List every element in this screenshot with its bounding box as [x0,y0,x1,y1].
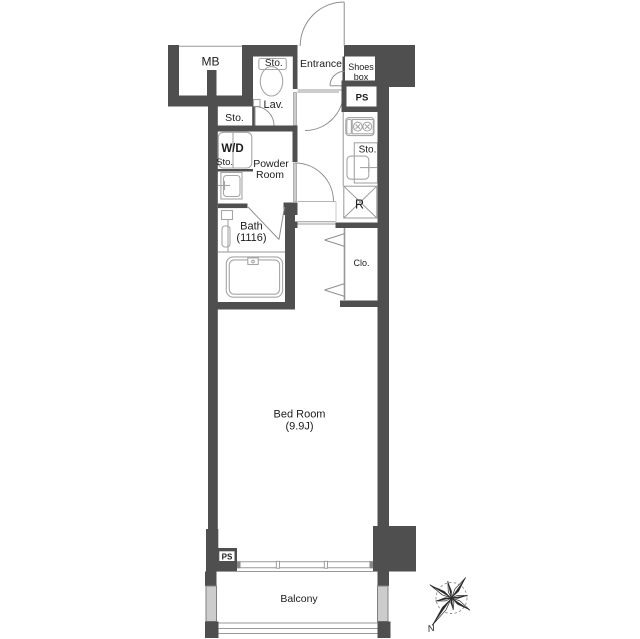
svg-text:Sto.: Sto. [265,58,283,69]
svg-text:Balcony: Balcony [280,593,318,605]
svg-text:W/D: W/D [221,143,243,155]
svg-text:Sto.: Sto. [225,112,244,124]
svg-text:Entrance: Entrance [300,58,342,70]
svg-text:Bed Room: Bed Room [274,408,326,420]
svg-text:Sto.: Sto. [216,157,233,168]
svg-text:Lav.: Lav. [264,99,284,111]
svg-text:(1116): (1116) [236,232,266,244]
svg-text:(9.9J): (9.9J) [285,421,313,433]
svg-text:PS: PS [222,552,233,561]
svg-text:Clo.: Clo. [353,258,369,268]
svg-text:R: R [355,197,364,211]
svg-text:PS: PS [356,92,369,103]
svg-text:Shoes: Shoes [348,62,374,72]
svg-text:box: box [354,72,369,82]
svg-text:Bath: Bath [240,221,263,233]
svg-text:MB: MB [202,54,220,68]
svg-text:Sto.: Sto. [359,144,377,155]
svg-text:Room: Room [256,169,284,181]
